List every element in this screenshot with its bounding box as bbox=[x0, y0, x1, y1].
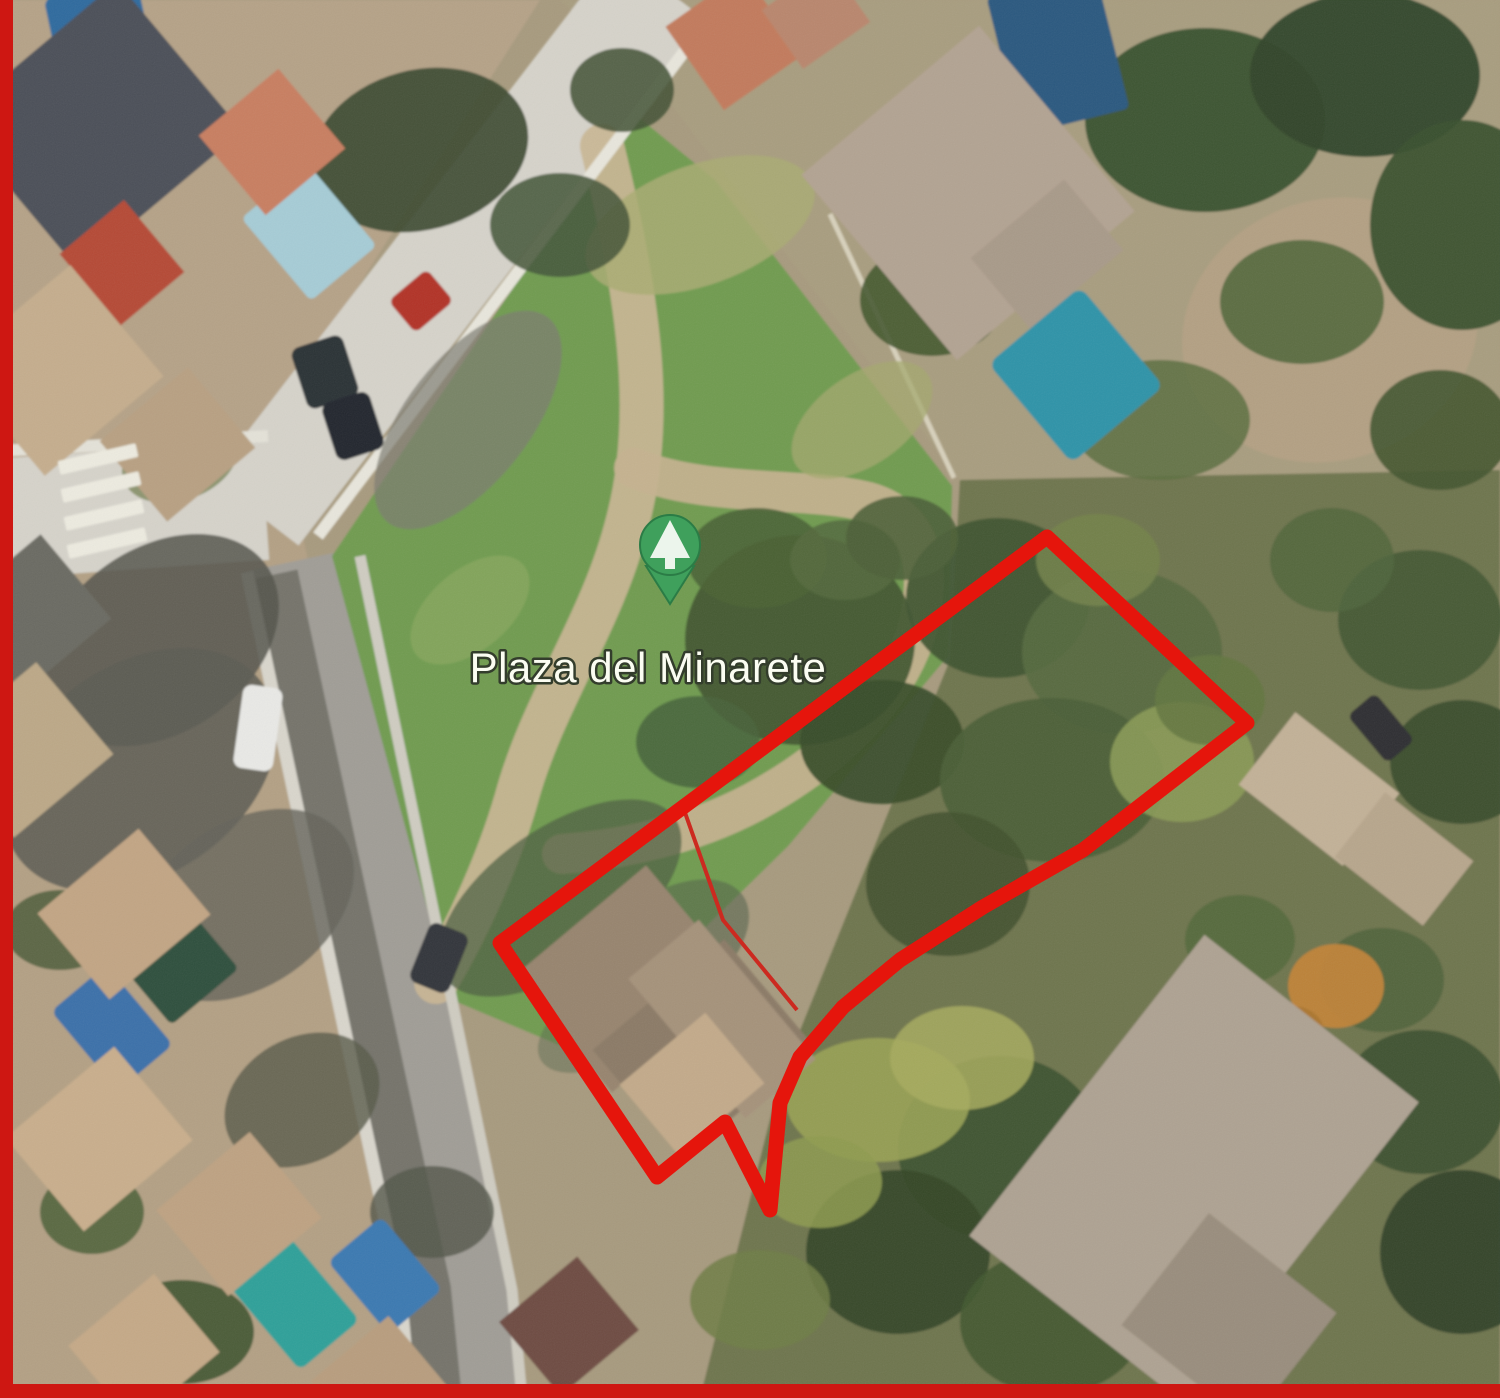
image-grain bbox=[0, 0, 1500, 1398]
frame-left bbox=[0, 0, 13, 1398]
tree-icon-trunk bbox=[665, 558, 675, 569]
frame-bottom bbox=[0, 1384, 1500, 1398]
place-label: Plaza del Minarete bbox=[470, 644, 827, 691]
aerial-view: Plaza del Minarete bbox=[0, 0, 1500, 1398]
satellite-map-image: Plaza del Minarete bbox=[0, 0, 1500, 1398]
